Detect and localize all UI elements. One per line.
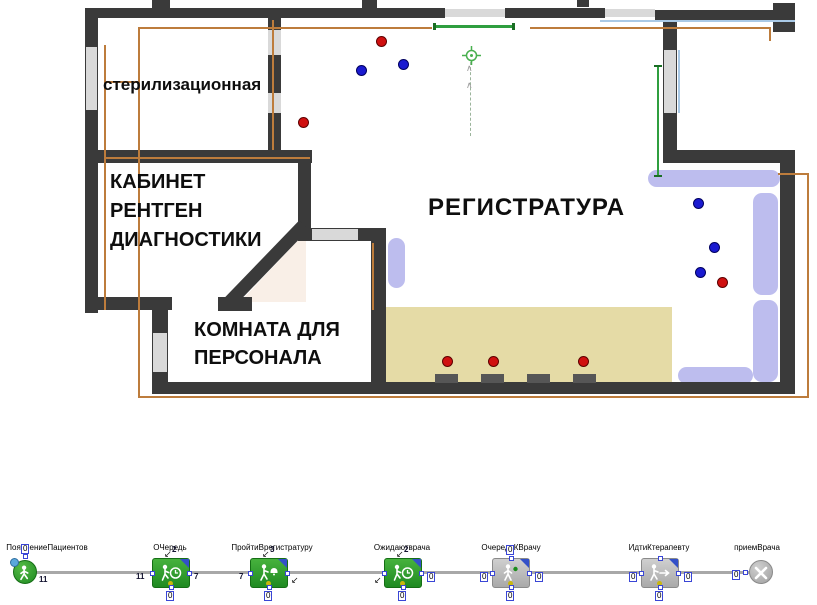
room-label-xray: КАБИНЕТ РЕНТГЕН ДИАГНОСТИКИ <box>110 168 262 255</box>
path-chevron-icon: ∧ <box>466 64 473 73</box>
agent-dot <box>398 59 409 70</box>
entrance-door <box>445 9 505 17</box>
in-count: 0 <box>629 572 637 582</box>
flow-block-goto-registry[interactable]: 7 3 ↙ ↙ 0 <box>250 558 288 588</box>
port-arrow-icon: ↙ <box>262 550 270 559</box>
agent-dot <box>578 356 589 367</box>
agent-dot <box>693 198 704 209</box>
port <box>490 571 495 576</box>
door <box>268 93 281 113</box>
service-point <box>481 374 504 383</box>
out-count: 7 <box>194 572 198 581</box>
door <box>153 333 167 372</box>
block-label: ПоявлениеПациентов <box>6 543 87 552</box>
block-label: приемВрача <box>734 543 780 552</box>
room-label-staff-line1: КОМНАТА ДЛЯ <box>194 316 340 344</box>
area-outline <box>778 173 808 175</box>
port <box>285 571 290 576</box>
out-count: 0 <box>427 572 435 582</box>
port-arrow-icon: ↙ <box>374 576 382 585</box>
bench <box>753 193 778 295</box>
service-point <box>435 374 458 383</box>
walking-person-icon <box>16 564 34 582</box>
corner-flag-icon <box>278 559 287 568</box>
port <box>187 571 192 576</box>
out-count: 0 <box>684 572 692 582</box>
port <box>527 571 532 576</box>
area-outline <box>138 396 808 398</box>
port-arrow-icon: ↙ <box>291 576 299 585</box>
port-arrow-icon: ↙ <box>164 550 172 559</box>
agent-dot <box>709 242 720 253</box>
port <box>23 554 28 559</box>
wall-markup-line <box>678 50 680 113</box>
target-line-end <box>512 23 515 30</box>
bottom-count: 0 <box>264 591 272 601</box>
flow-block-goto-therapist[interactable]: 0 0 0 <box>641 558 679 588</box>
wall <box>505 8 605 18</box>
flow-block-ped-sink[interactable]: 0 <box>749 560 773 584</box>
corner-flag-icon <box>180 559 189 568</box>
corner-flag-icon <box>669 559 678 568</box>
room-label-staff-line2: ПЕРСОНАЛА <box>194 344 340 372</box>
port <box>509 556 514 561</box>
port <box>658 556 663 561</box>
room-label-xray-line2: РЕНТГЕН <box>110 197 262 226</box>
room-label-staff: КОМНАТА ДЛЯ ПЕРСОНАЛА <box>194 316 340 372</box>
out-count: 0 <box>535 572 543 582</box>
agent-dot <box>356 65 367 76</box>
wall <box>85 8 445 18</box>
top-count: 2 <box>172 545 176 554</box>
agent-dot <box>376 36 387 47</box>
reception-counter-area <box>386 307 672 382</box>
top-count: 3 <box>270 545 274 554</box>
bench <box>388 238 405 288</box>
area-outline <box>272 20 274 150</box>
in-count: 11 <box>136 572 144 581</box>
port-arrow-icon: ↙ <box>396 550 404 559</box>
area-outline <box>138 27 432 29</box>
x-icon <box>754 566 768 580</box>
port <box>676 571 681 576</box>
door <box>268 30 281 55</box>
target-line-end <box>654 65 662 67</box>
wall <box>780 150 795 392</box>
agent-dot <box>695 267 706 278</box>
port <box>743 570 748 575</box>
wall <box>298 163 311 229</box>
in-count: 0 <box>480 572 488 582</box>
top-count: 0 <box>21 544 29 554</box>
room-label-sterilization: стерилизационная <box>103 75 261 95</box>
room-label-registry: РЕГИСТРАТУРА <box>428 194 625 222</box>
agent-dot <box>488 356 499 367</box>
in-count: 7 <box>239 572 243 581</box>
port <box>639 571 644 576</box>
wall <box>663 150 795 163</box>
top-count: 2 <box>404 545 408 554</box>
bottom-count: 0 <box>506 591 514 601</box>
port <box>150 571 155 576</box>
target-line <box>657 66 659 177</box>
area-outline <box>807 173 809 398</box>
port <box>382 571 387 576</box>
wall <box>85 297 172 310</box>
bottom-count: 0 <box>398 591 406 601</box>
port <box>401 585 406 590</box>
door <box>664 50 676 113</box>
port <box>267 585 272 590</box>
area-outline <box>530 27 770 29</box>
wall-pier <box>362 0 377 9</box>
window <box>86 47 97 110</box>
wall <box>152 382 795 394</box>
walk-path-dashed <box>470 62 471 136</box>
flow-block-ped-source[interactable]: 0 11 <box>13 560 37 584</box>
port <box>509 585 514 590</box>
room-label-xray-line1: КАБИНЕТ <box>110 168 262 197</box>
bottom-count: 0 <box>655 591 663 601</box>
wall <box>218 297 252 311</box>
area-outline <box>104 157 310 159</box>
agent-type-badge-icon <box>10 558 19 567</box>
bottom-count: 0 <box>166 591 174 601</box>
wall-markup-line <box>600 20 795 22</box>
wall-pier <box>152 0 170 9</box>
block-label: ИдтиКтерапевту <box>629 543 690 552</box>
service-point <box>573 374 596 383</box>
path-chevron-icon: ∧ <box>466 81 473 90</box>
room-label-xray-line3: ДИАГНОСТИКИ <box>110 226 262 255</box>
area-outline <box>769 27 771 41</box>
in-count: 0 <box>732 570 740 580</box>
target-line <box>435 25 513 28</box>
port <box>658 585 663 590</box>
corner-flag-icon <box>520 559 529 568</box>
window <box>605 9 655 17</box>
flow-block-queue[interactable]: 11 7 2 ↙ 0 <box>152 558 190 588</box>
corner-flag-icon <box>412 559 421 568</box>
bench <box>648 170 780 187</box>
flow-block-wait-doctor[interactable]: ↙ 2 ↙ 0 0 <box>384 558 422 588</box>
bench <box>753 300 778 382</box>
target-line-end <box>433 23 436 30</box>
port <box>248 571 253 576</box>
port <box>169 585 174 590</box>
top-count: 0 <box>506 545 514 555</box>
agent-dot <box>298 117 309 128</box>
target-line-end <box>654 175 662 177</box>
agent-dot <box>442 356 453 367</box>
wall-pier <box>577 0 589 7</box>
wall-corner <box>773 3 795 32</box>
area-outline <box>372 243 374 310</box>
flow-block-queue-doctor[interactable]: 0 0 0 0 <box>492 558 530 588</box>
out-count: 11 <box>39 575 47 584</box>
agent-dot <box>717 277 728 288</box>
simulation-canvas: ∧ ∧ стерилизационная КАБИНЕТ РЕНТГЕН ДИА… <box>0 0 817 605</box>
door <box>312 229 358 240</box>
service-point <box>527 374 550 383</box>
port <box>419 571 424 576</box>
